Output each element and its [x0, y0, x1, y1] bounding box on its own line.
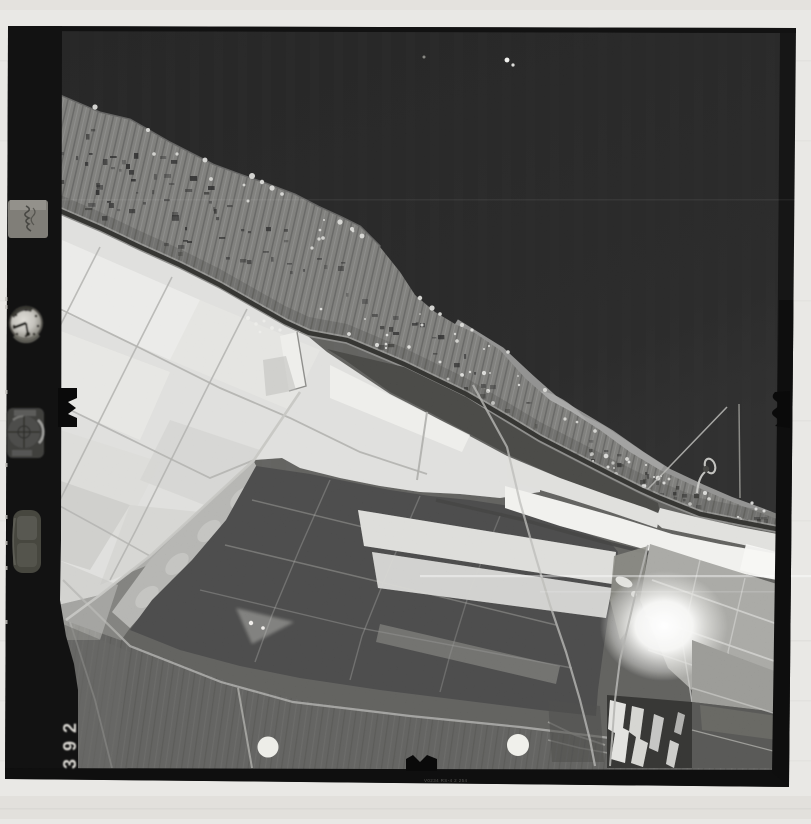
svg-text:V0234 RS-4 2 254: V0234 RS-4 2 254	[424, 778, 468, 783]
svg-text:392: 392	[60, 715, 80, 769]
